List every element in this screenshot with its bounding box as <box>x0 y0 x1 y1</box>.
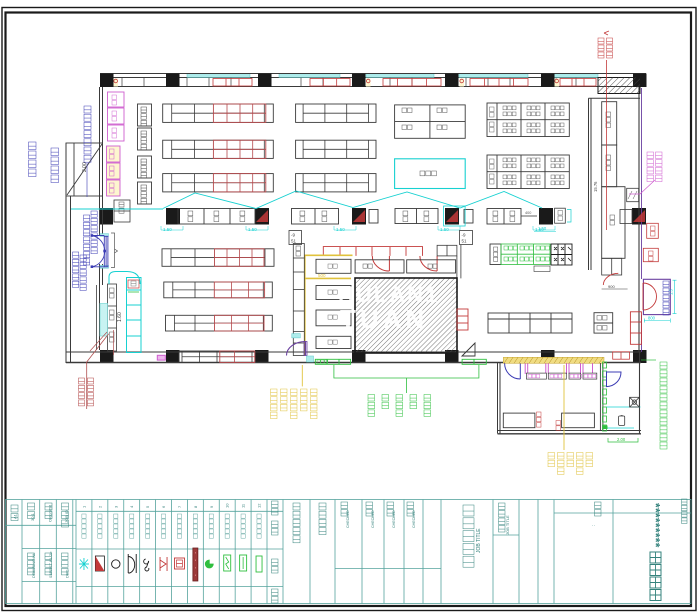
svg-text:51: 51 <box>291 239 297 244</box>
svg-text:A1: A1 <box>13 513 18 519</box>
svg-text:*********: ********* <box>649 503 663 548</box>
svg-text:800: 800 <box>648 316 656 321</box>
svg-text:900: 900 <box>608 284 615 289</box>
svg-text:JOB ID: JOB ID <box>64 510 69 523</box>
svg-text:CHECKED: CHECKED <box>371 510 375 528</box>
svg-text:CHECKED: CHECKED <box>346 510 350 528</box>
svg-text:500: 500 <box>318 273 326 278</box>
svg-text:30.1: 30.1 <box>30 512 35 521</box>
svg-text:-9: -9 <box>462 233 466 238</box>
svg-text::: : <box>591 525 596 526</box>
svg-text:CHECKED: CHECKED <box>392 510 396 528</box>
svg-text:JOB TITLE: JOB TITLE <box>476 528 482 553</box>
svg-text:1.50: 1.50 <box>163 227 172 232</box>
svg-text:TUAN: TUAN <box>340 304 428 334</box>
svg-text:DRAWING NL: DRAWING NL <box>31 552 36 578</box>
svg-text:51: 51 <box>462 239 468 244</box>
svg-text:CHECKED: CHECKED <box>412 510 416 528</box>
svg-text:03PRET KL 2b: 03PRET KL 2b <box>48 551 53 578</box>
svg-text:JOB TITLE: JOB TITLE <box>505 515 510 535</box>
svg-text:2.00: 2.00 <box>617 437 626 442</box>
svg-text:1.50: 1.50 <box>538 226 547 231</box>
svg-text:10: 10 <box>225 503 230 508</box>
svg-text:1.50: 1.50 <box>248 227 257 232</box>
svg-text:ORGSTR: ORGSTR <box>48 505 53 522</box>
svg-text:15.76: 15.76 <box>593 181 598 192</box>
svg-text:1.50: 1.50 <box>440 227 449 232</box>
svg-text:1.60: 1.60 <box>117 312 123 322</box>
svg-text:1.50: 1.50 <box>336 227 345 232</box>
svg-text:12: 12 <box>257 503 262 508</box>
svg-text:-9: -9 <box>291 233 295 238</box>
svg-text:1.5: 1.5 <box>669 289 674 295</box>
svg-text:400: 400 <box>525 211 531 215</box>
svg-text:DPC: DPC <box>65 569 70 578</box>
